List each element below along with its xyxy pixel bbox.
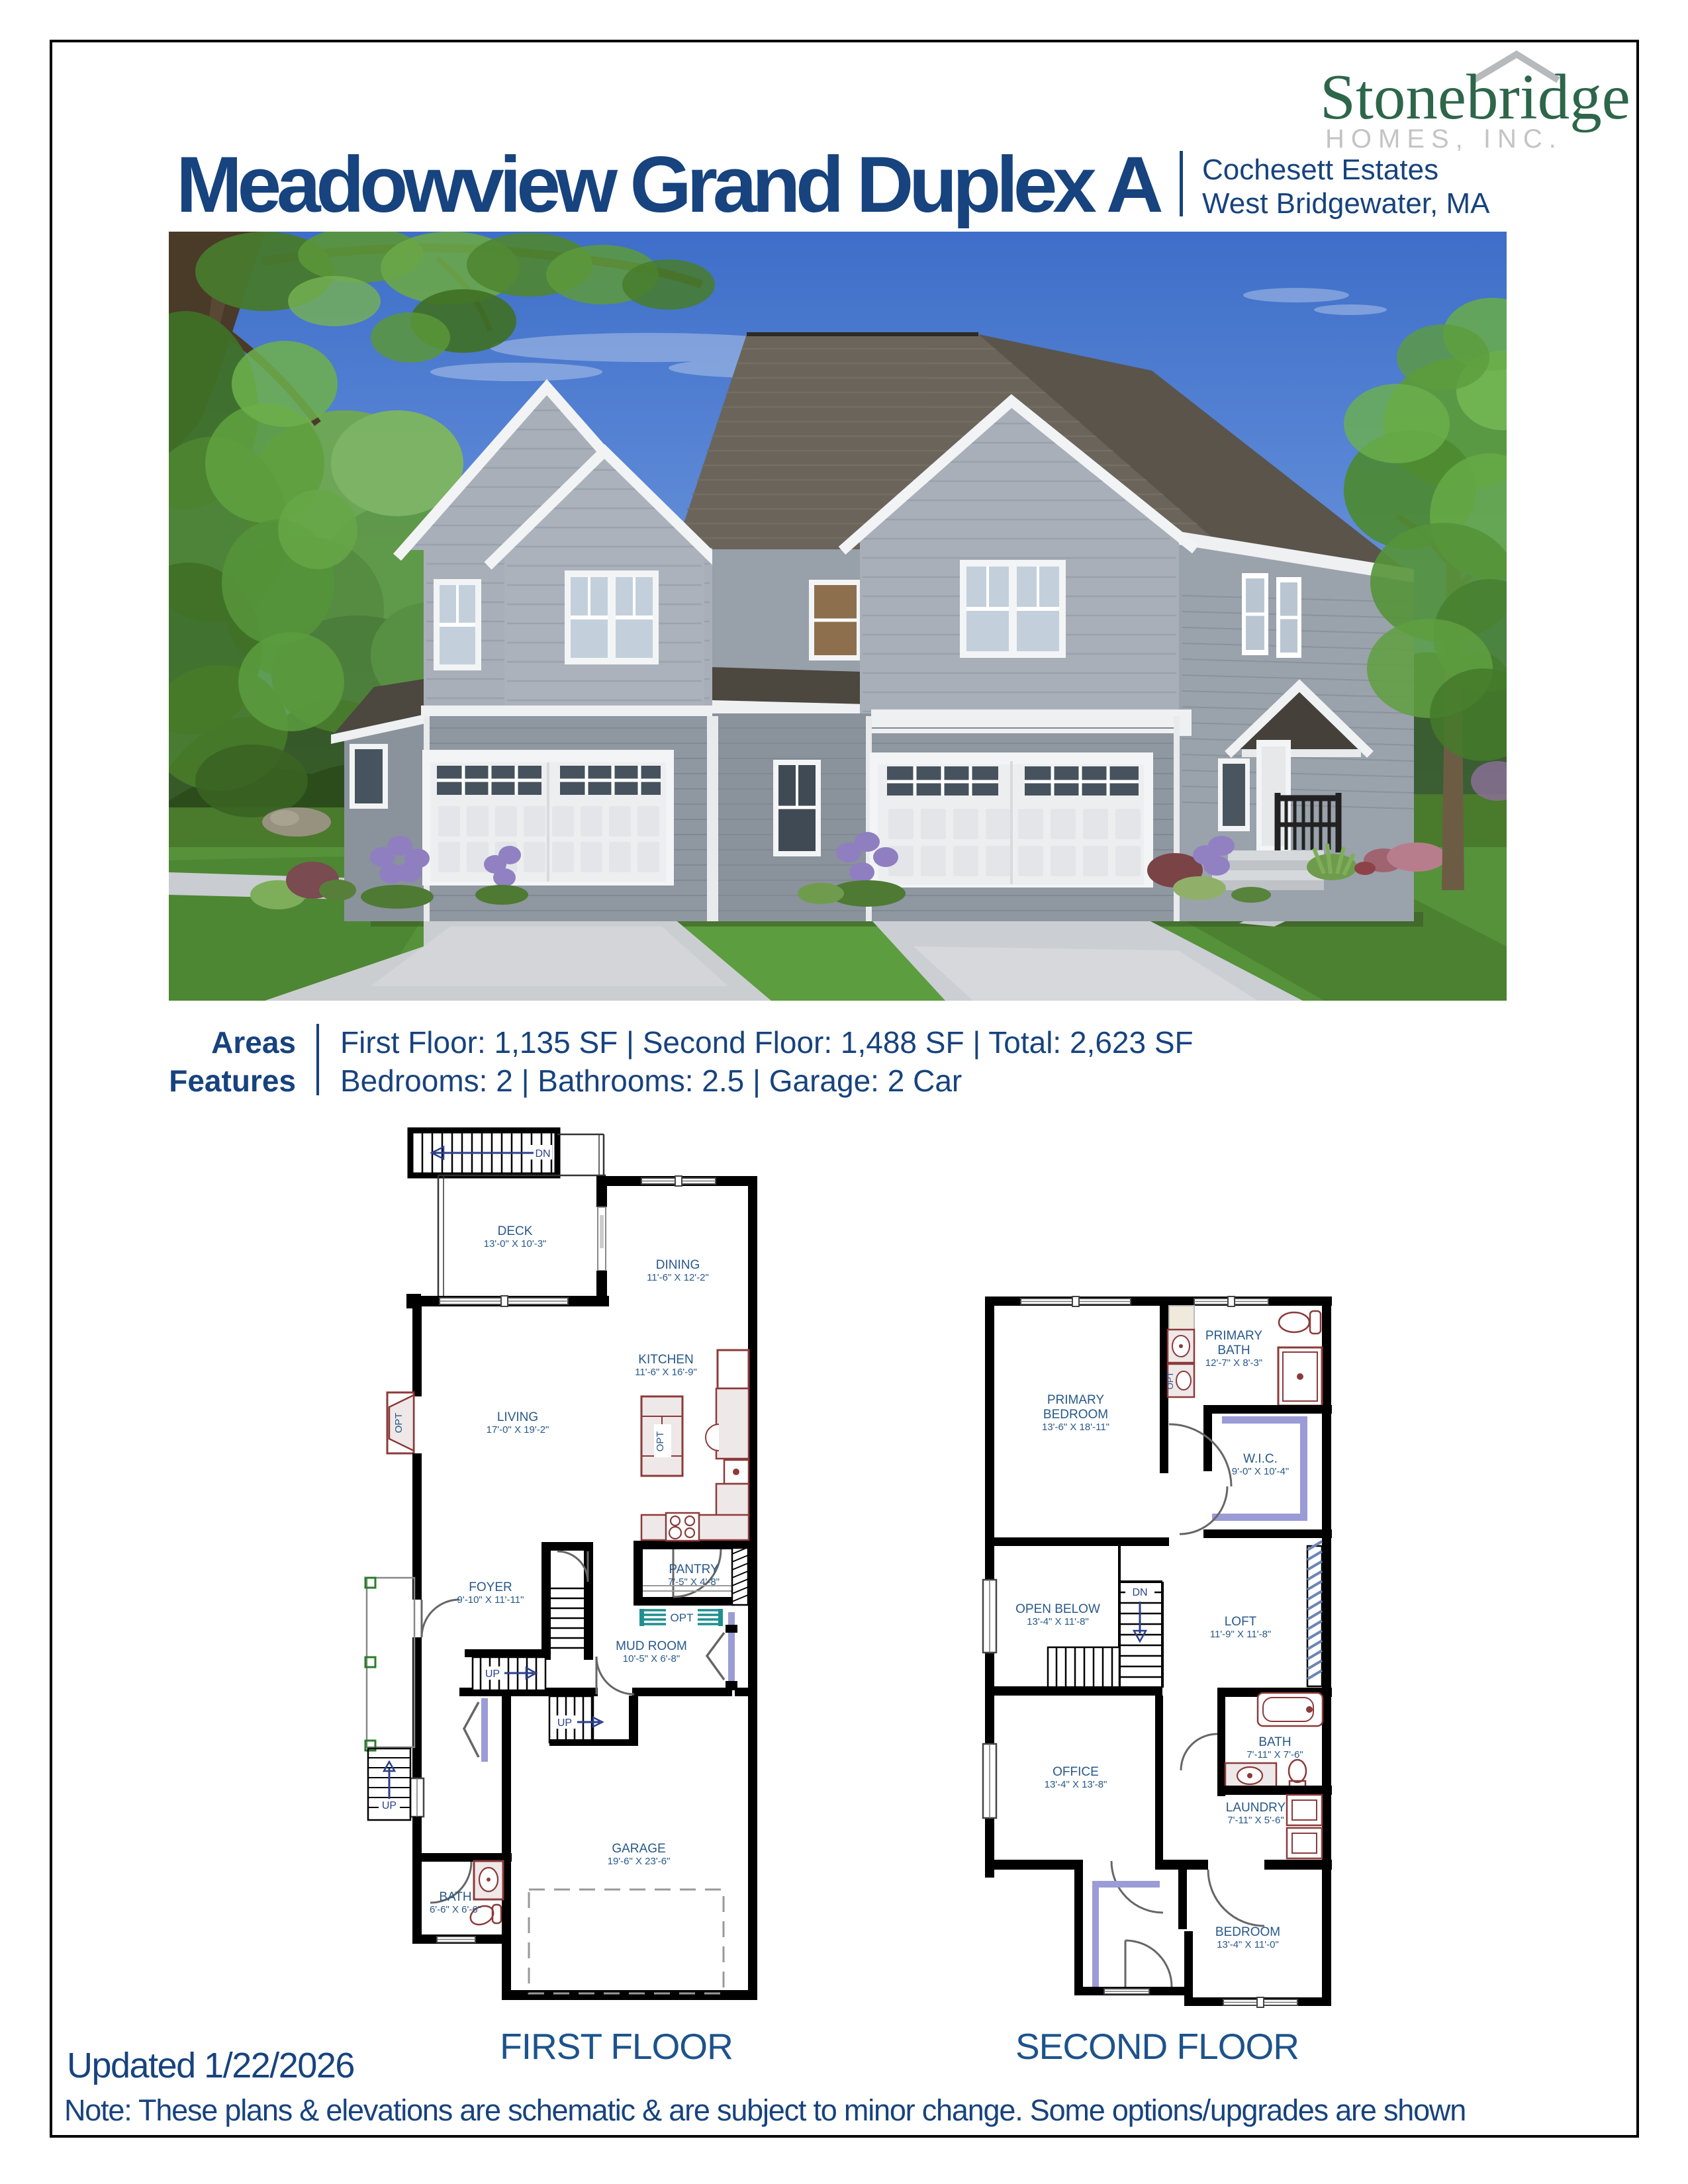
svg-text:DN: DN: [535, 1148, 550, 1160]
svg-text:LAUNDRY: LAUNDRY: [1226, 1801, 1286, 1815]
svg-text:OFFICE: OFFICE: [1053, 1765, 1099, 1779]
svg-text:OPT: OPT: [655, 1432, 666, 1452]
svg-text:OPEN BELOW: OPEN BELOW: [1015, 1602, 1100, 1616]
svg-text:MUD ROOM: MUD ROOM: [616, 1639, 687, 1653]
svg-text:11'-9" X 11'-8": 11'-9" X 11'-8": [1210, 1629, 1272, 1640]
svg-text:BATH: BATH: [1258, 1735, 1291, 1749]
svg-text:DINING: DINING: [656, 1258, 700, 1272]
svg-text:13'-0" X 10'-3": 13'-0" X 10'-3": [484, 1238, 547, 1250]
svg-text:UP: UP: [382, 1800, 397, 1811]
svg-text:DECK: DECK: [498, 1224, 533, 1238]
svg-text:LIVING: LIVING: [497, 1410, 538, 1424]
svg-text:PRIMARY: PRIMARY: [1205, 1329, 1263, 1343]
svg-text:GARAGE: GARAGE: [612, 1842, 665, 1856]
svg-text:9'-10" X 11'-11": 9'-10" X 11'-11": [457, 1594, 524, 1606]
svg-text:PANTRY: PANTRY: [669, 1563, 719, 1576]
svg-text:DN: DN: [1132, 1587, 1147, 1598]
svg-text:7'-5" X 4'-8": 7'-5" X 4'-8": [668, 1576, 720, 1588]
svg-text:BATH: BATH: [439, 1890, 471, 1904]
svg-text:LOFT: LOFT: [1225, 1615, 1257, 1629]
svg-text:PRIMARY: PRIMARY: [1047, 1393, 1105, 1407]
svg-text:OPT: OPT: [1165, 1372, 1175, 1390]
svg-text:UP: UP: [557, 1717, 572, 1729]
svg-text:BEDROOM: BEDROOM: [1043, 1408, 1108, 1422]
svg-text:KITCHEN: KITCHEN: [638, 1353, 693, 1367]
svg-text:7'-11" X 5'-6": 7'-11" X 5'-6": [1227, 1815, 1284, 1826]
svg-text:BEDROOM: BEDROOM: [1215, 1925, 1280, 1939]
svg-text:FOYER: FOYER: [469, 1580, 512, 1594]
svg-text:OPT: OPT: [393, 1413, 404, 1433]
svg-text:13'-6" X 18'-11": 13'-6" X 18'-11": [1042, 1422, 1109, 1433]
svg-text:12'-7" X 8'-3": 12'-7" X 8'-3": [1205, 1357, 1262, 1369]
svg-text:W.I.C.: W.I.C.: [1243, 1452, 1278, 1466]
svg-text:OPT: OPT: [671, 1612, 694, 1624]
svg-text:BATH: BATH: [1217, 1343, 1250, 1357]
svg-text:7'-11" X 7'-6": 7'-11" X 7'-6": [1246, 1749, 1303, 1760]
svg-text:17'-0" X 19'-2": 17'-0" X 19'-2": [487, 1424, 549, 1435]
svg-text:UP: UP: [485, 1668, 500, 1680]
svg-text:9'-0" X 10'-4": 9'-0" X 10'-4": [1232, 1466, 1289, 1477]
svg-text:13'-4" X 13'-8": 13'-4" X 13'-8": [1045, 1779, 1107, 1790]
svg-text:13'-4" X 11'-8": 13'-4" X 11'-8": [1027, 1616, 1089, 1627]
svg-text:11'-6" X 16'-9": 11'-6" X 16'-9": [635, 1367, 697, 1378]
svg-text:13'-4" X 11'-0": 13'-4" X 11'-0": [1217, 1939, 1279, 1950]
svg-text:6'-6" X 6'-6": 6'-6" X 6'-6": [430, 1904, 481, 1915]
svg-text:19'-6" X 23'-6": 19'-6" X 23'-6": [608, 1856, 671, 1867]
svg-text:10'-5" X 6'-8": 10'-5" X 6'-8": [623, 1653, 680, 1664]
svg-text:11'-6" X 12'-2": 11'-6" X 12'-2": [647, 1272, 709, 1283]
